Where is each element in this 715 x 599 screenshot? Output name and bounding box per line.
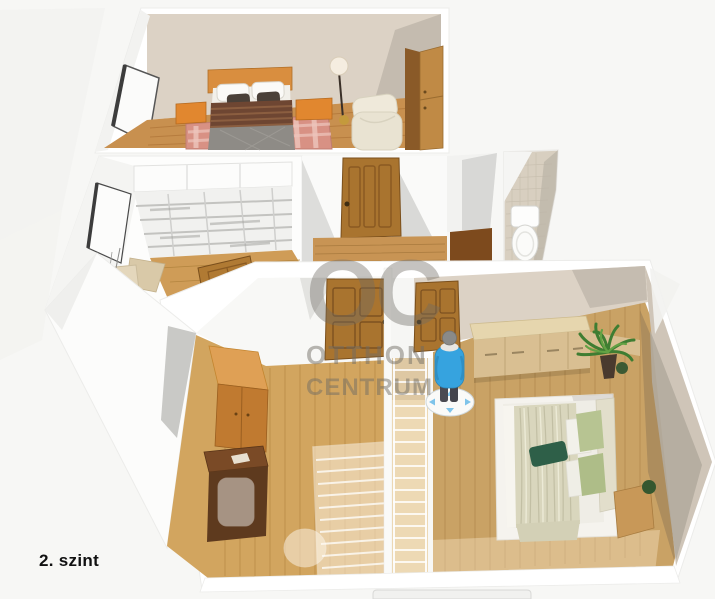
- ghost-chair: [218, 478, 254, 526]
- plant-small-ball: [616, 362, 628, 374]
- door-handle: [345, 202, 350, 207]
- bookshelf: [134, 162, 292, 258]
- stair-room-desk: [204, 446, 268, 542]
- pillow-green-top: [576, 410, 604, 452]
- armchair: [352, 93, 402, 150]
- toilet: [511, 206, 539, 261]
- nightstand-left: [176, 102, 206, 124]
- hallway-door: [341, 158, 401, 238]
- wardrobe-upper: [405, 46, 443, 150]
- nightstand-plant: [642, 480, 656, 494]
- stair-room-wardrobe: [205, 346, 268, 452]
- watermark-line1: OTTHON: [306, 340, 428, 370]
- watermark: OC OTTHON CENTRUM: [306, 240, 441, 401]
- pillow-green-bottom: [578, 453, 606, 496]
- double-bed-upper: [208, 67, 295, 150]
- room-bedroom-upper: [95, 8, 449, 153]
- master-bed: [495, 394, 617, 542]
- watermark-logo: OC: [306, 240, 441, 345]
- avatar-torso: [435, 346, 464, 388]
- floor-lamp-base: [339, 115, 349, 125]
- floor-label: 2. szint: [39, 551, 99, 571]
- nightstand-right: [296, 98, 332, 120]
- watermark-line2: CENTRUM: [306, 374, 433, 401]
- floor-plan-screenshot: OC OTTHON CENTRUM 2. szint: [0, 0, 715, 599]
- lower-floor-peek-tab: [373, 590, 531, 599]
- floor-lamp-shade: [330, 57, 348, 75]
- ghost-object: [284, 529, 326, 567]
- floor-plan-render: OC OTTHON CENTRUM: [0, 0, 715, 599]
- toilet-tank: [511, 206, 539, 227]
- avatar-head: [443, 331, 457, 345]
